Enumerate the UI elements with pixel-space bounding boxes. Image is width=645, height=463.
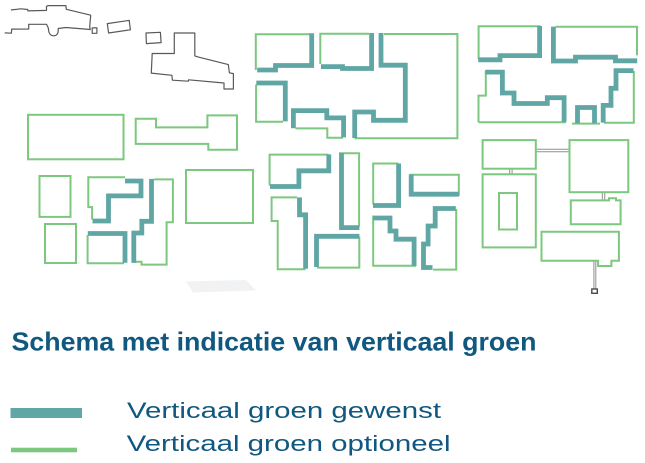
svg-text:Verticaal groen optioneel: Verticaal groen optioneel	[127, 431, 451, 456]
svg-text:Schema met indicatie van verti: Schema met indicatie van verticaal groen	[12, 326, 537, 356]
svg-text:Verticaal groen gewenst: Verticaal groen gewenst	[127, 398, 442, 423]
